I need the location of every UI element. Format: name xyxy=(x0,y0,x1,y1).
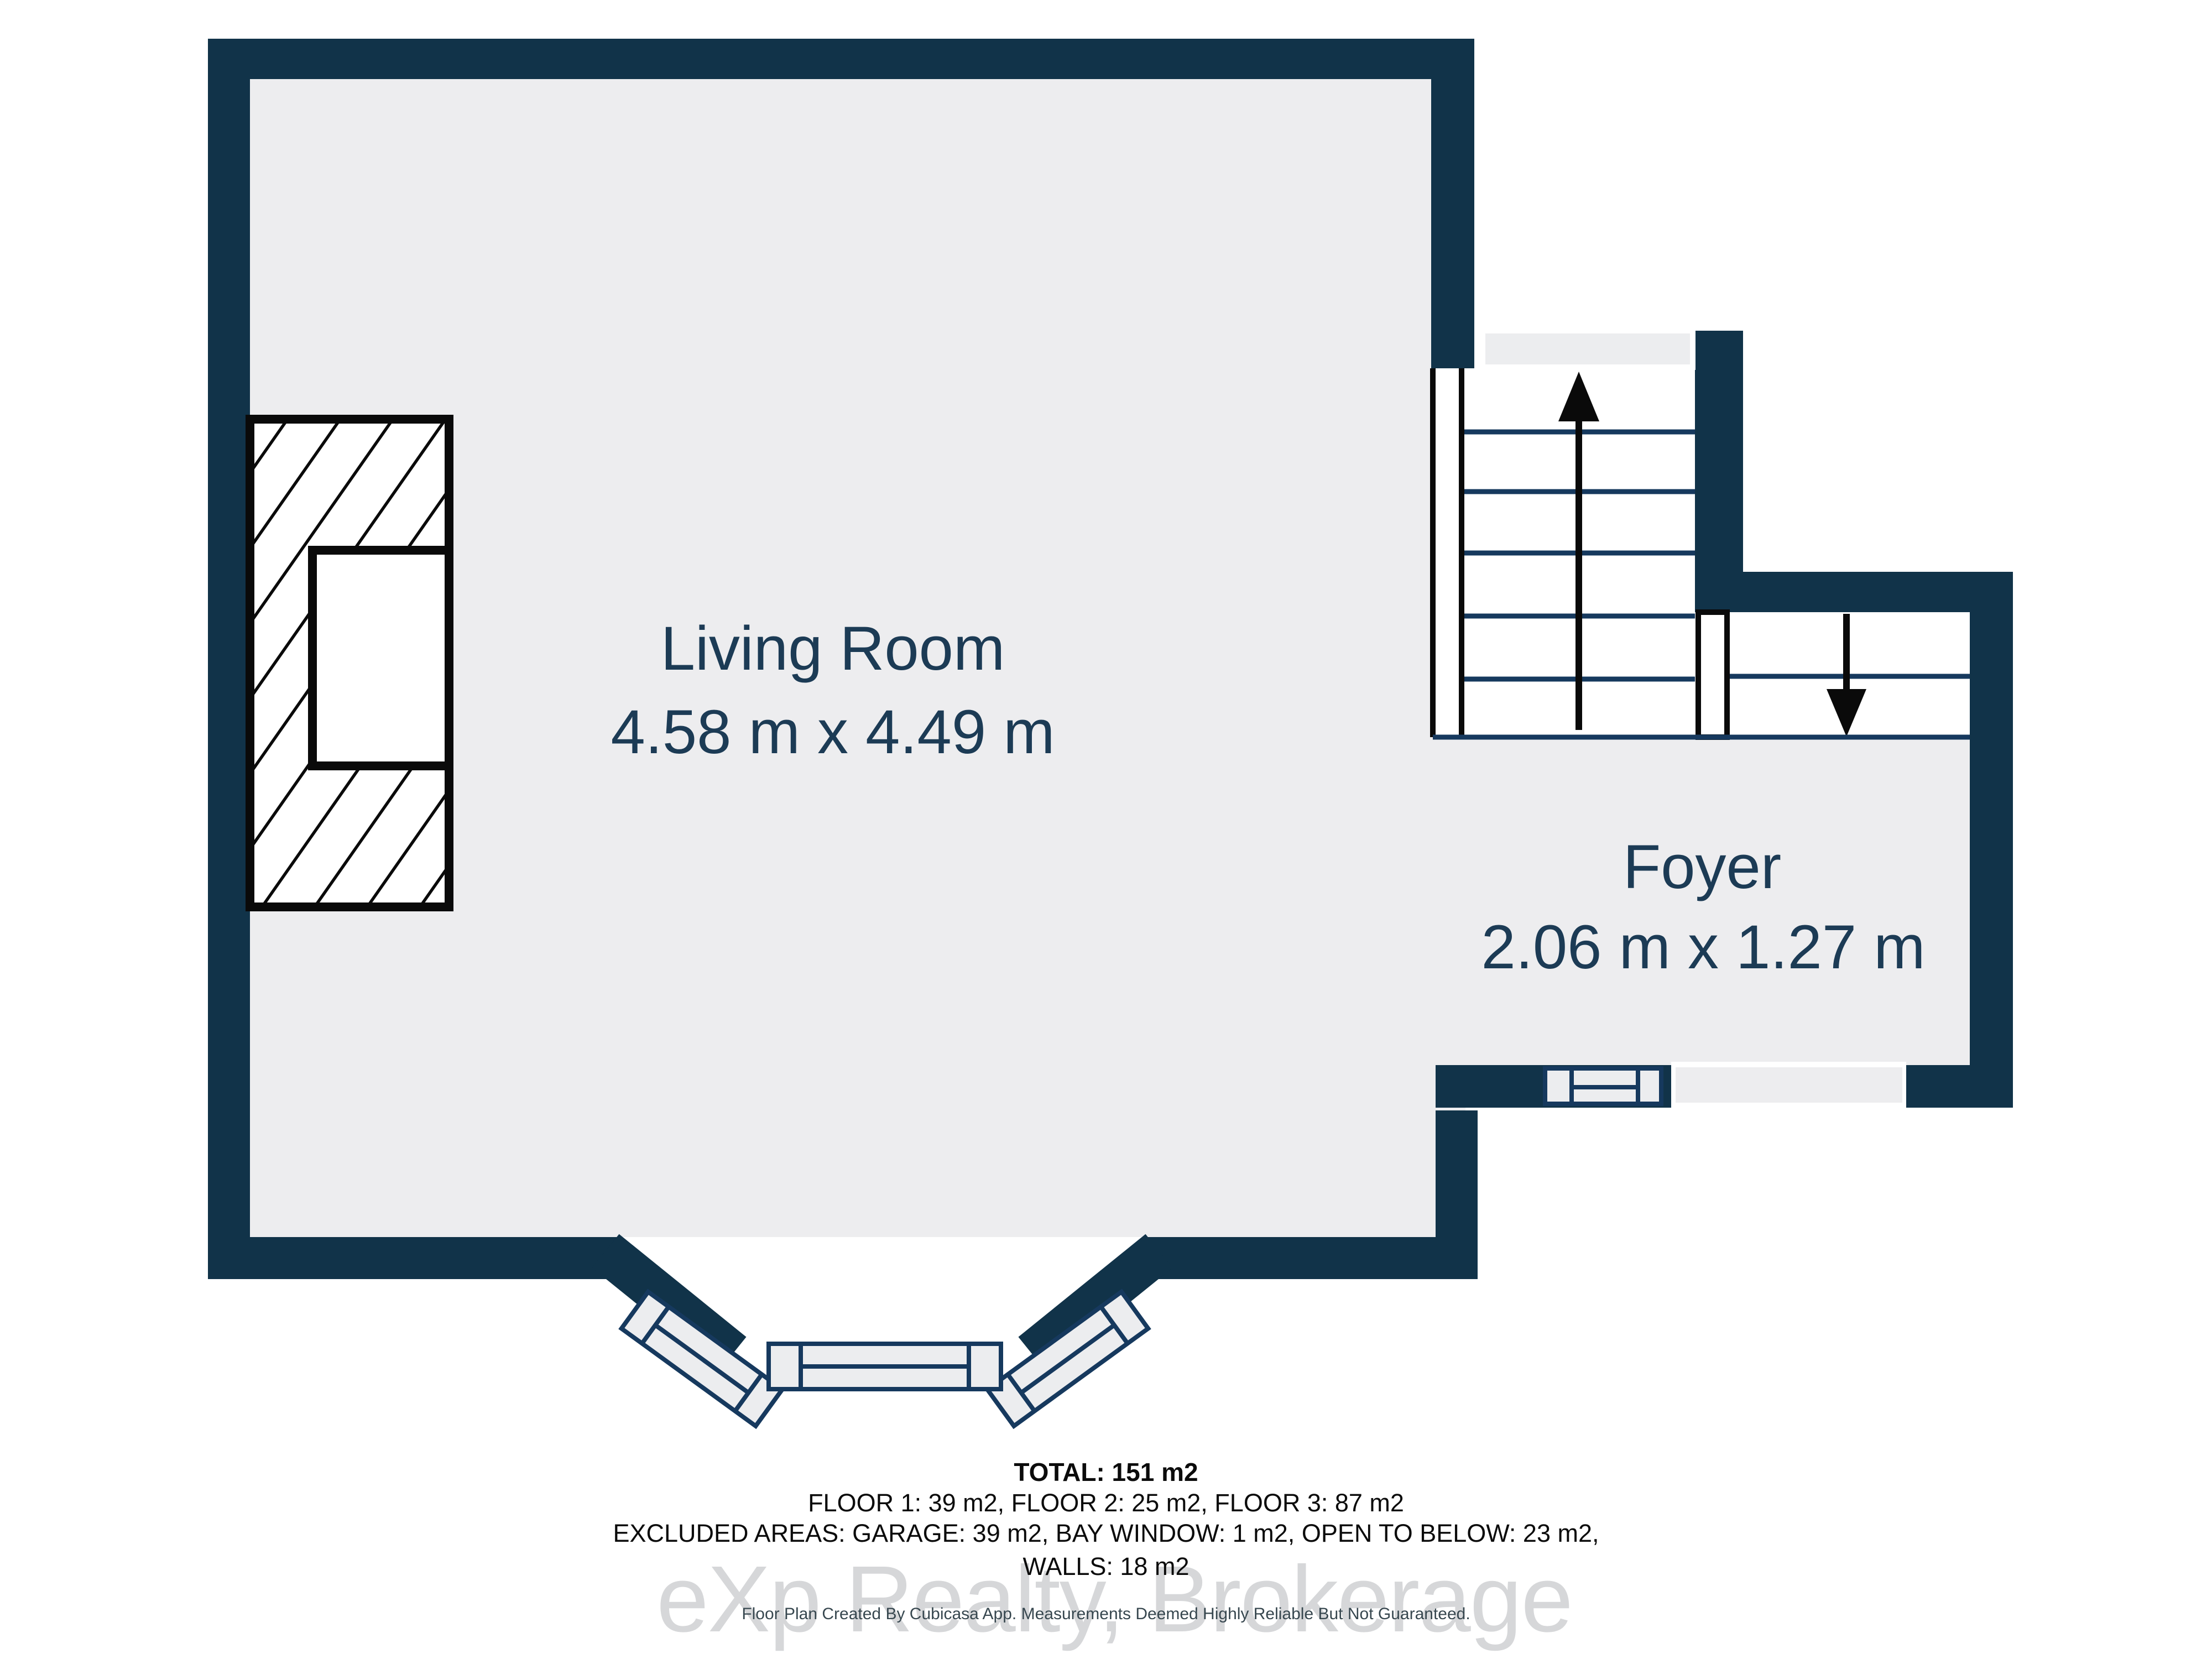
wall-top xyxy=(208,39,1474,79)
disclaimer-line: Floor Plan Created By Cubicasa App. Meas… xyxy=(742,1605,1470,1623)
stair-newel-post xyxy=(1698,612,1727,737)
bay-window-center-unit xyxy=(769,1344,1001,1389)
floor-plan-page: Living Room 4.58 m x 4.49 m Foyer 2.06 m… xyxy=(0,0,2212,1659)
foyer-entry-opening xyxy=(1671,1062,1906,1108)
fireplace-firebox xyxy=(312,550,449,766)
wall-step xyxy=(1436,1110,1478,1279)
wall-bottom-right xyxy=(1148,1237,1478,1279)
opening-gap xyxy=(1676,1067,1902,1103)
fireplace xyxy=(250,419,449,907)
foyer-window xyxy=(1545,1068,1661,1104)
living-room-dimensions: 4.58 m x 4.49 m xyxy=(611,697,1055,766)
wall-left xyxy=(208,39,250,1279)
wall-living-right xyxy=(1431,79,1474,368)
total-area-line: TOTAL: 151 m2 xyxy=(1014,1458,1198,1486)
wall-stair-right xyxy=(1695,331,1743,612)
walls-area-line: WALLS: 18 m2 xyxy=(1023,1552,1190,1580)
stair-landing xyxy=(1483,331,1693,367)
wall-foyer-top xyxy=(1702,572,2013,612)
foyer-floor xyxy=(1465,739,1970,1067)
floor-plan-svg: Living Room 4.58 m x 4.49 m Foyer 2.06 m… xyxy=(0,0,2212,1659)
wall-bottom-left xyxy=(208,1237,621,1279)
floor-areas-line: FLOOR 1: 39 m2, FLOOR 2: 25 m2, FLOOR 3:… xyxy=(808,1489,1404,1517)
foyer-label: Foyer xyxy=(1623,832,1781,901)
excluded-areas-line: EXCLUDED AREAS: GARAGE: 39 m2, BAY WINDO… xyxy=(613,1519,1599,1547)
wall-foyer-right xyxy=(1970,572,2013,1108)
foyer-dimensions: 2.06 m x 1.27 m xyxy=(1481,912,1925,982)
living-room-label: Living Room xyxy=(661,614,1005,683)
